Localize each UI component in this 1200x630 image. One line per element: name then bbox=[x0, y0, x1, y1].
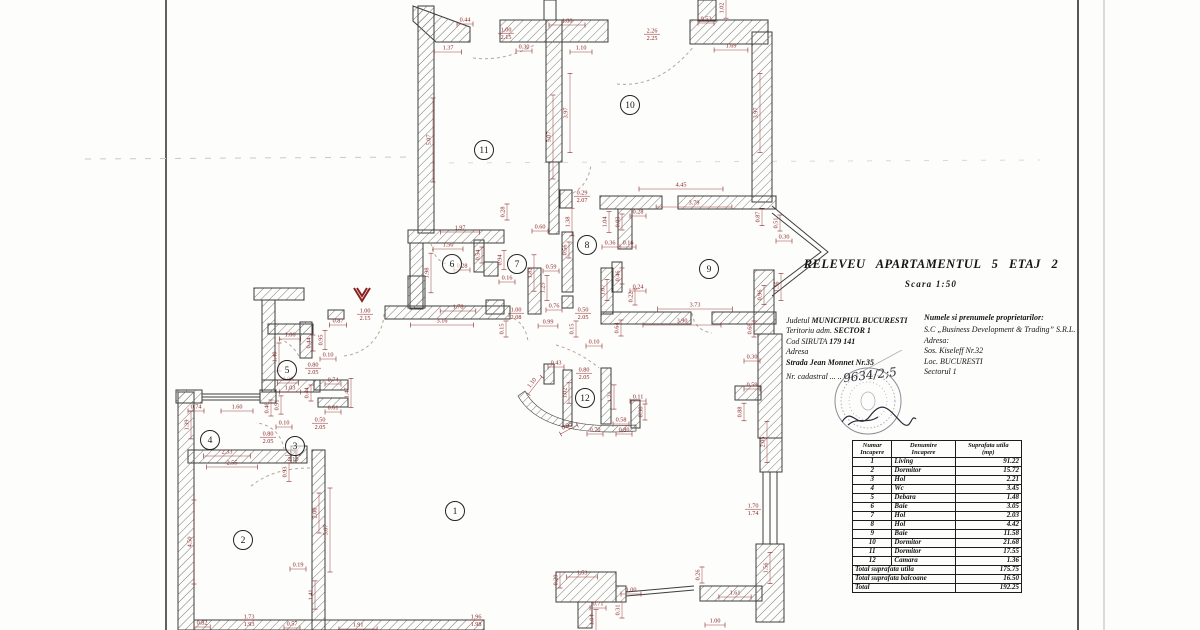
svg-text:0.31: 0.31 bbox=[615, 605, 622, 616]
svg-text:1.47: 1.47 bbox=[344, 388, 351, 399]
room-number-marker: 12 bbox=[576, 389, 595, 408]
room-area-cell: 3.45 bbox=[955, 485, 1021, 494]
svg-text:11: 11 bbox=[479, 146, 488, 156]
street-line: Strada Jean Monnet Nr.35 bbox=[786, 358, 922, 368]
svg-text:0.11: 0.11 bbox=[633, 394, 644, 401]
room-area-cell: 15.72 bbox=[955, 467, 1021, 476]
svg-text:0.74: 0.74 bbox=[328, 377, 339, 384]
room-area-cell: 2.03 bbox=[955, 512, 1021, 521]
svg-text:0.03: 0.03 bbox=[615, 217, 622, 228]
dimension-label: 0.802.05 bbox=[260, 431, 276, 446]
dimension-label: 0.58 bbox=[613, 417, 629, 427]
dimension-label: 0.802.05 bbox=[305, 362, 321, 377]
header-room-area: Suprafata utila (mp) bbox=[955, 441, 1021, 458]
room-number-cell: 8 bbox=[853, 521, 892, 530]
svg-text:2.55: 2.55 bbox=[227, 460, 238, 467]
room-row: 6Baie3.05 bbox=[853, 503, 1022, 512]
svg-text:1.07: 1.07 bbox=[600, 285, 607, 296]
svg-text:1.97: 1.97 bbox=[455, 225, 466, 232]
room-name-cell: Camara bbox=[892, 557, 955, 566]
room-area-cell: 17.55 bbox=[955, 548, 1021, 557]
svg-text:5.07: 5.07 bbox=[323, 525, 330, 536]
svg-text:2: 2 bbox=[241, 536, 246, 546]
room-name-cell: Baie bbox=[892, 503, 955, 512]
dimension-label: 2.262.25 bbox=[644, 28, 660, 43]
room-areas-table: Numar Incapere Denumire Incapere Suprafa… bbox=[852, 440, 1022, 593]
address-label-line: Adresa bbox=[786, 347, 922, 357]
svg-text:1.96: 1.96 bbox=[471, 614, 482, 621]
svg-text:2.08: 2.08 bbox=[511, 314, 522, 321]
svg-text:0.68: 0.68 bbox=[747, 324, 754, 335]
total-value-cell: 192.25 bbox=[955, 584, 1021, 593]
svg-text:5.07: 5.07 bbox=[426, 135, 433, 146]
room-area-cell: 1.36 bbox=[955, 557, 1021, 566]
svg-text:0.74: 0.74 bbox=[191, 404, 202, 411]
svg-text:3.97: 3.97 bbox=[753, 108, 760, 119]
dimension-label: 0.19 bbox=[290, 562, 306, 572]
dimension-label: 1.701.74 bbox=[745, 503, 761, 518]
dimension-label: 3.97 bbox=[563, 73, 573, 152]
room-number-marker: 5 bbox=[278, 361, 297, 380]
total-row: Total192.25 bbox=[853, 584, 1022, 593]
handwritten-cadastral-number: 9634/2;5 bbox=[842, 365, 897, 385]
dimension-label: 0.76 bbox=[546, 303, 562, 313]
svg-text:1.53: 1.53 bbox=[577, 570, 588, 577]
total-row: Total suprafata balcoane16.50 bbox=[853, 575, 1022, 584]
room-number-cell: 4 bbox=[853, 485, 892, 494]
room-area-cell: 11.58 bbox=[955, 530, 1021, 539]
dimension-label: 1.002.15 bbox=[357, 308, 373, 323]
owner-label: Numele si prenumele proprietarilor: bbox=[924, 313, 1099, 323]
dimension-label: 1.60 bbox=[221, 404, 253, 414]
dimension-label: 0.10 bbox=[320, 352, 336, 362]
svg-text:0.22: 0.22 bbox=[628, 292, 635, 303]
svg-text:0.59: 0.59 bbox=[546, 264, 557, 271]
dimension-label: 0.26 bbox=[695, 567, 705, 583]
svg-text:1.98: 1.98 bbox=[471, 621, 482, 628]
svg-text:0.15: 0.15 bbox=[569, 324, 576, 335]
svg-text:0.30: 0.30 bbox=[747, 354, 758, 361]
svg-text:0.26: 0.26 bbox=[695, 570, 702, 581]
room-row: 8Hol4.42 bbox=[853, 521, 1022, 530]
svg-text:5.07: 5.07 bbox=[546, 132, 553, 143]
walls bbox=[176, 0, 828, 630]
dimension-label: 1.002.08 bbox=[508, 307, 524, 322]
svg-text:2.26: 2.26 bbox=[647, 28, 658, 35]
svg-text:2.07: 2.07 bbox=[577, 197, 588, 204]
svg-text:0.53: 0.53 bbox=[701, 16, 712, 23]
svg-text:1.93: 1.93 bbox=[244, 621, 255, 628]
svg-text:1.38: 1.38 bbox=[565, 217, 572, 228]
svg-text:3.90: 3.90 bbox=[677, 318, 688, 325]
svg-text:0.70: 0.70 bbox=[590, 427, 601, 434]
dimension-label: 0.60 bbox=[532, 224, 548, 234]
svg-text:1.56: 1.56 bbox=[763, 563, 770, 574]
svg-text:0.50: 0.50 bbox=[578, 307, 589, 314]
room-number-marker: 8 bbox=[578, 236, 597, 255]
svg-text:2.05: 2.05 bbox=[760, 437, 767, 448]
dimension-label: 0.15 bbox=[499, 321, 509, 337]
svg-text:0.80: 0.80 bbox=[619, 427, 630, 434]
room-row: 10Dormitor21.68 bbox=[853, 539, 1022, 548]
room-number-marker: 4 bbox=[201, 431, 220, 450]
dimension-label: 0.10 bbox=[276, 420, 292, 430]
svg-text:0.87: 0.87 bbox=[755, 212, 762, 223]
room-row: 12Camara1.36 bbox=[853, 557, 1022, 566]
svg-text:0.51: 0.51 bbox=[773, 218, 780, 229]
entrance-arrow-icon bbox=[354, 288, 370, 301]
svg-text:0.80: 0.80 bbox=[308, 362, 319, 369]
svg-text:1.61: 1.61 bbox=[730, 590, 741, 597]
total-label-cell: Total suprafata balcoane bbox=[853, 575, 956, 584]
svg-text:2.05: 2.05 bbox=[315, 424, 326, 431]
svg-text:1.00: 1.00 bbox=[360, 308, 371, 315]
svg-text:1.00: 1.00 bbox=[511, 307, 522, 314]
table-header: Numar Incapere Denumire Incapere Suprafa… bbox=[853, 441, 1022, 458]
dimension-label: 1.36 bbox=[774, 273, 784, 300]
dimension-label: 0.93 bbox=[282, 463, 292, 482]
svg-text:0.59: 0.59 bbox=[747, 382, 758, 389]
svg-text:0.50: 0.50 bbox=[315, 417, 326, 424]
header-room-name: Denumire Incapere bbox=[892, 441, 955, 458]
dimension-label: 0.292.07 bbox=[574, 190, 590, 205]
total-row: Total suprafata utila175.75 bbox=[853, 566, 1022, 575]
svg-text:0.30: 0.30 bbox=[779, 234, 790, 241]
room-number-marker: 3 bbox=[286, 437, 305, 456]
dimension-label: 0.99 bbox=[538, 319, 558, 329]
svg-text:1.98: 1.98 bbox=[424, 268, 431, 279]
room-name-cell: Hol bbox=[892, 476, 955, 485]
cadastral-line: Nr. cadastral ... ..9634/2;5 bbox=[786, 368, 922, 382]
total-label-cell: Total bbox=[853, 584, 956, 593]
svg-text:0.16: 0.16 bbox=[502, 275, 513, 282]
room-number-cell: 5 bbox=[853, 494, 892, 503]
svg-text:10: 10 bbox=[625, 101, 635, 111]
svg-text:0.93: 0.93 bbox=[282, 467, 289, 478]
svg-text:2.05: 2.05 bbox=[263, 438, 274, 445]
svg-text:0.16: 0.16 bbox=[623, 240, 634, 247]
svg-text:0.60: 0.60 bbox=[535, 224, 546, 231]
room-row: 2Dormitor15.72 bbox=[853, 467, 1022, 476]
svg-text:8: 8 bbox=[585, 241, 590, 251]
svg-text:0.87: 0.87 bbox=[333, 318, 344, 325]
room-number-marker: 9 bbox=[700, 260, 719, 279]
svg-text:0.61: 0.61 bbox=[328, 405, 339, 412]
svg-text:0.30: 0.30 bbox=[519, 44, 530, 51]
svg-text:1.04: 1.04 bbox=[589, 615, 596, 626]
svg-text:2.15: 2.15 bbox=[360, 315, 371, 322]
svg-text:1.04: 1.04 bbox=[602, 217, 609, 228]
svg-text:0.80: 0.80 bbox=[263, 431, 274, 438]
svg-text:1.02: 1.02 bbox=[719, 3, 726, 14]
svg-text:1.02: 1.02 bbox=[562, 388, 569, 399]
svg-text:0.46: 0.46 bbox=[264, 403, 271, 414]
svg-text:0.99: 0.99 bbox=[543, 319, 554, 326]
svg-text:1.82: 1.82 bbox=[527, 268, 534, 279]
svg-text:1.10: 1.10 bbox=[576, 45, 587, 52]
room-name-cell: Dormitor bbox=[892, 548, 955, 557]
svg-text:3.73: 3.73 bbox=[690, 302, 701, 309]
dimension-label: 0.59 bbox=[543, 264, 559, 274]
room-name-cell: Debara bbox=[892, 494, 955, 503]
total-label-cell: Total suprafata utila bbox=[853, 566, 956, 575]
svg-text:2.10: 2.10 bbox=[288, 456, 299, 463]
svg-text:2.15: 2.15 bbox=[501, 34, 512, 41]
room-row: 7Hol2.03 bbox=[853, 512, 1022, 521]
svg-text:0.44: 0.44 bbox=[306, 338, 313, 349]
svg-text:1.06: 1.06 bbox=[285, 332, 296, 339]
svg-text:0.28: 0.28 bbox=[500, 207, 507, 218]
svg-text:2.00: 2.00 bbox=[312, 508, 319, 519]
svg-text:12: 12 bbox=[580, 394, 590, 404]
room-name-cell: Dormitor bbox=[892, 467, 955, 476]
svg-text:0.29: 0.29 bbox=[553, 575, 560, 586]
svg-text:0.95: 0.95 bbox=[318, 335, 325, 346]
room-number-cell: 9 bbox=[853, 530, 892, 539]
room-number-cell: 3 bbox=[853, 476, 892, 485]
svg-text:0.44: 0.44 bbox=[304, 388, 311, 399]
owner-street: Sos. Kiseleff Nr.32 bbox=[924, 346, 1099, 356]
svg-text:1.40: 1.40 bbox=[272, 352, 279, 363]
room-name-cell: Living bbox=[892, 458, 955, 467]
room-name-cell: Hol bbox=[892, 512, 955, 521]
svg-text:0.43: 0.43 bbox=[551, 360, 562, 367]
svg-text:4: 4 bbox=[208, 436, 213, 446]
dimension-label: 1.00 bbox=[705, 618, 725, 628]
territory-line: Teritoriu adm. SECTOR 1 bbox=[786, 326, 922, 336]
svg-text:0.38: 0.38 bbox=[638, 407, 645, 418]
dimension-label: 0.30 bbox=[516, 44, 532, 54]
parcel-info-block: Judetul MUNICIPIUL BUCURESTI Teritoriu a… bbox=[786, 316, 922, 382]
svg-text:0.24: 0.24 bbox=[633, 284, 644, 291]
svg-text:2.05: 2.05 bbox=[578, 314, 589, 321]
svg-text:0.96: 0.96 bbox=[757, 290, 764, 301]
dimension-label: 0.30 bbox=[776, 234, 792, 244]
room-area-cell: 1.48 bbox=[955, 494, 1021, 503]
svg-text:1.69: 1.69 bbox=[726, 43, 737, 50]
room-name-cell: Wc bbox=[892, 485, 955, 494]
room-row: 1Living91.22 bbox=[853, 458, 1022, 467]
room-area-cell: 2.21 bbox=[955, 476, 1021, 485]
dimension-label: 0.502.05 bbox=[312, 417, 328, 432]
room-number-marker: 6 bbox=[443, 255, 462, 274]
room-number-marker: 7 bbox=[508, 255, 527, 274]
svg-text:2.33: 2.33 bbox=[222, 449, 233, 456]
owner-info-block: Numele si prenumele proprietarilor: S.C … bbox=[924, 313, 1099, 377]
svg-text:1.00: 1.00 bbox=[626, 587, 637, 594]
svg-text:0.80: 0.80 bbox=[579, 367, 590, 374]
room-row: 4Wc3.45 bbox=[853, 485, 1022, 494]
svg-text:0.28: 0.28 bbox=[633, 209, 644, 216]
svg-text:1.60: 1.60 bbox=[232, 404, 243, 411]
dimension-label: 1.02 bbox=[719, 0, 729, 18]
svg-text:3.97: 3.97 bbox=[563, 108, 570, 119]
svg-text:0.82: 0.82 bbox=[197, 620, 208, 627]
owner-name: S.C „Business Development & Trading” S.R… bbox=[924, 325, 1099, 335]
room-number-cell: 1 bbox=[853, 458, 892, 467]
svg-text:0.57: 0.57 bbox=[287, 621, 298, 628]
svg-text:1.73: 1.73 bbox=[244, 614, 255, 621]
siruta-line: Cod SIRUTA 179 141 bbox=[786, 337, 922, 347]
room-number-cell: 2 bbox=[853, 467, 892, 476]
svg-text:1.37: 1.37 bbox=[443, 45, 454, 52]
room-area-cell: 91.22 bbox=[955, 458, 1021, 467]
svg-text:7: 7 bbox=[515, 260, 520, 270]
svg-text:1: 1 bbox=[453, 507, 458, 517]
room-row: 5Debara1.48 bbox=[853, 494, 1022, 503]
svg-text:4.45: 4.45 bbox=[676, 182, 687, 189]
svg-text:1.78: 1.78 bbox=[453, 304, 464, 311]
dimension-label: 1.37 bbox=[434, 45, 461, 55]
dimension-label: 0.502.05 bbox=[575, 307, 591, 322]
room-area-cell: 21.68 bbox=[955, 539, 1021, 548]
svg-text:3.79: 3.79 bbox=[689, 200, 700, 207]
dimension-label: 0.15 bbox=[569, 321, 579, 337]
dimension-label: 0.16 bbox=[499, 275, 515, 285]
owner-city: Loc. BUCURESTI bbox=[924, 357, 1099, 367]
room-number-cell: 7 bbox=[853, 512, 892, 521]
room-number-marker: 2 bbox=[234, 531, 253, 550]
dimension-label: 1.04 bbox=[602, 212, 612, 233]
svg-text:6: 6 bbox=[450, 260, 455, 270]
dimension-label: 4.45 bbox=[639, 182, 723, 192]
room-name-cell: Hol bbox=[892, 521, 955, 530]
owner-sector: Sectorul 1 bbox=[924, 367, 1099, 377]
svg-text:0.58: 0.58 bbox=[616, 417, 627, 424]
svg-text:1.50: 1.50 bbox=[443, 242, 454, 249]
total-value-cell: 16.50 bbox=[955, 575, 1021, 584]
room-area-cell: 3.05 bbox=[955, 503, 1021, 512]
svg-text:0.46: 0.46 bbox=[615, 271, 622, 282]
svg-text:1.21: 1.21 bbox=[607, 392, 614, 403]
room-name-cell: Dormitor bbox=[892, 539, 955, 548]
svg-text:0.36: 0.36 bbox=[605, 240, 616, 247]
svg-text:0.44: 0.44 bbox=[460, 17, 471, 24]
svg-text:1.10: 1.10 bbox=[526, 377, 538, 390]
dimension-label: 0.88 bbox=[737, 403, 747, 421]
svg-text:0.88: 0.88 bbox=[737, 407, 744, 418]
svg-text:0.10: 0.10 bbox=[279, 420, 290, 427]
svg-text:1.39: 1.39 bbox=[184, 420, 191, 431]
dimension-label: 0.802.05 bbox=[576, 367, 592, 382]
dimension-label: 0.31 bbox=[615, 602, 625, 618]
svg-text:1.36: 1.36 bbox=[774, 282, 781, 293]
svg-text:4.50: 4.50 bbox=[187, 537, 194, 548]
svg-text:2.25: 2.25 bbox=[647, 35, 658, 42]
svg-text:3.16: 3.16 bbox=[437, 318, 448, 325]
svg-text:0.10: 0.10 bbox=[323, 352, 334, 359]
svg-text:1.03: 1.03 bbox=[285, 385, 296, 392]
room-row: 11Dormitor17.55 bbox=[853, 548, 1022, 557]
room-row: 9Baie11.58 bbox=[853, 530, 1022, 539]
room-number-cell: 10 bbox=[853, 539, 892, 548]
room-row: 3Hol2.21 bbox=[853, 476, 1022, 485]
dimension-label: 3.73 bbox=[658, 302, 733, 312]
svg-text:1.80: 1.80 bbox=[562, 18, 573, 25]
room-area-cell: 4.42 bbox=[955, 521, 1021, 530]
room-number-cell: 12 bbox=[853, 557, 892, 566]
total-value-cell: 175.75 bbox=[955, 566, 1021, 575]
plan-scale: Scara 1:50 bbox=[798, 279, 1064, 289]
dimension-label: 0.22 bbox=[628, 289, 638, 305]
svg-text:2.05: 2.05 bbox=[579, 374, 590, 381]
svg-text:0.54: 0.54 bbox=[475, 250, 482, 261]
svg-text:0.19: 0.19 bbox=[293, 562, 304, 569]
dimension-label: 1.10 bbox=[570, 45, 592, 55]
svg-text:1.91: 1.91 bbox=[353, 622, 364, 629]
room-number-cell: 6 bbox=[853, 503, 892, 512]
room-name-cell: Baie bbox=[892, 530, 955, 539]
room-number-cell: 11 bbox=[853, 548, 892, 557]
svg-text:1.00: 1.00 bbox=[501, 27, 512, 34]
room-number-marker: 1 bbox=[446, 502, 465, 521]
dimension-label: 0.28 bbox=[500, 204, 510, 220]
county-line: Judetul MUNICIPIUL BUCURESTI bbox=[786, 316, 922, 326]
svg-text:9: 9 bbox=[707, 265, 712, 275]
svg-text:1.00: 1.00 bbox=[710, 618, 721, 625]
svg-text:0.29: 0.29 bbox=[577, 190, 588, 197]
svg-text:1.41: 1.41 bbox=[308, 590, 315, 601]
svg-text:0.76: 0.76 bbox=[549, 303, 560, 310]
plan-title: RELEVEU APARTAMENTUL 5 ETAJ 2 bbox=[798, 257, 1064, 272]
svg-text:0.91: 0.91 bbox=[274, 400, 281, 411]
svg-text:0.15: 0.15 bbox=[499, 324, 506, 335]
svg-text:2.05: 2.05 bbox=[308, 369, 319, 376]
title-block: RELEVEU APARTAMENTUL 5 ETAJ 2 Scara 1:50 bbox=[798, 257, 1064, 289]
dimension-label: 0.36 bbox=[602, 240, 618, 250]
svg-text:1.25: 1.25 bbox=[540, 283, 547, 294]
svg-text:0.64: 0.64 bbox=[614, 323, 621, 334]
svg-text:5: 5 bbox=[285, 366, 290, 376]
svg-text:0.94: 0.94 bbox=[497, 255, 504, 266]
room-number-marker: 10 bbox=[621, 96, 640, 115]
svg-text:0.56: 0.56 bbox=[562, 245, 569, 256]
svg-text:0.71: 0.71 bbox=[593, 601, 604, 608]
room-number-marker: 11 bbox=[475, 141, 494, 160]
dimension-label: 0.87 bbox=[755, 208, 765, 225]
dimension-label: 0.95 bbox=[318, 331, 328, 350]
svg-text:1.70: 1.70 bbox=[748, 503, 759, 510]
dimension-label: 0.10 bbox=[586, 339, 602, 349]
svg-text:1.74: 1.74 bbox=[748, 510, 759, 517]
svg-text:0.10: 0.10 bbox=[589, 339, 600, 346]
svg-text:3: 3 bbox=[293, 442, 298, 452]
header-room-number: Numar Incapere bbox=[853, 441, 892, 458]
scanned-floor-plan-page: { "header": { "title": "RELEVEU APARTAME… bbox=[0, 0, 1200, 630]
owner-address-label: Adresa: bbox=[924, 336, 1099, 346]
